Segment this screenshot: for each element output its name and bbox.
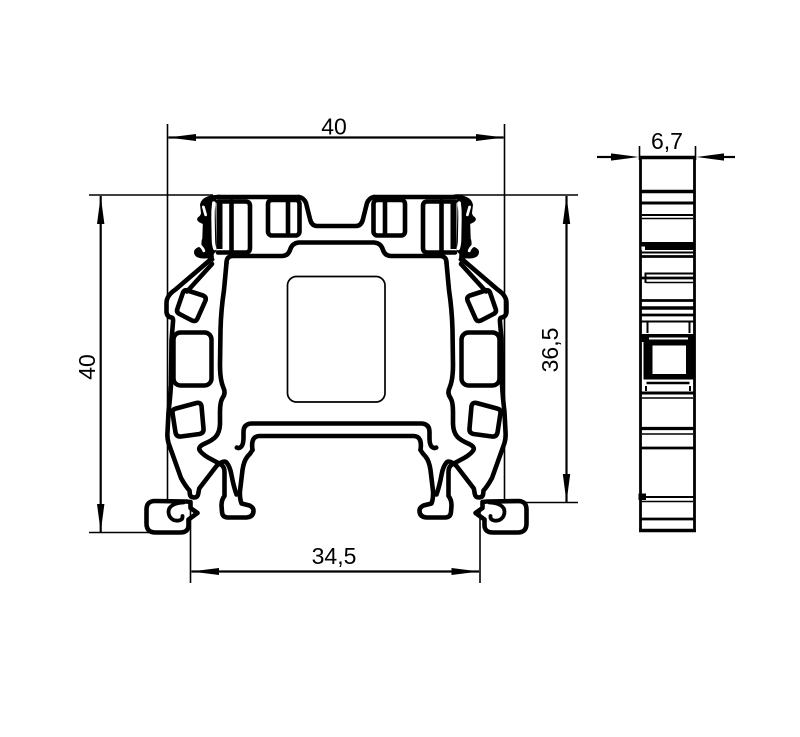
- svg-text:36,5: 36,5: [537, 328, 563, 373]
- svg-text:40: 40: [74, 354, 100, 380]
- svg-text:34,5: 34,5: [312, 543, 357, 569]
- svg-text:6,7: 6,7: [651, 128, 683, 154]
- svg-text:40: 40: [321, 114, 347, 140]
